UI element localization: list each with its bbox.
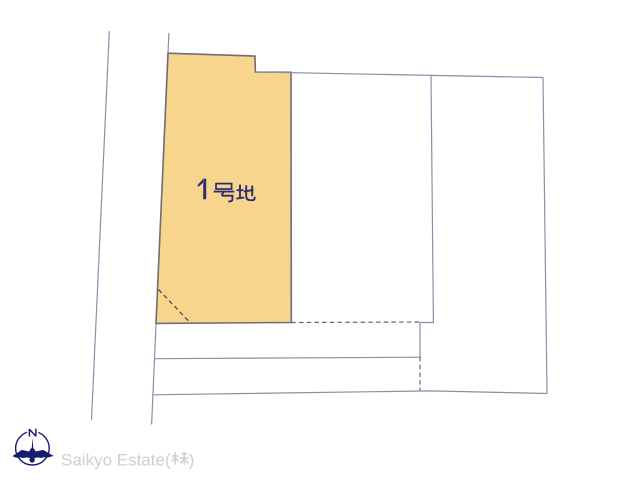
svg-text:): ) xyxy=(189,450,195,469)
svg-text:Saikyo Estate(: Saikyo Estate( xyxy=(61,450,171,469)
